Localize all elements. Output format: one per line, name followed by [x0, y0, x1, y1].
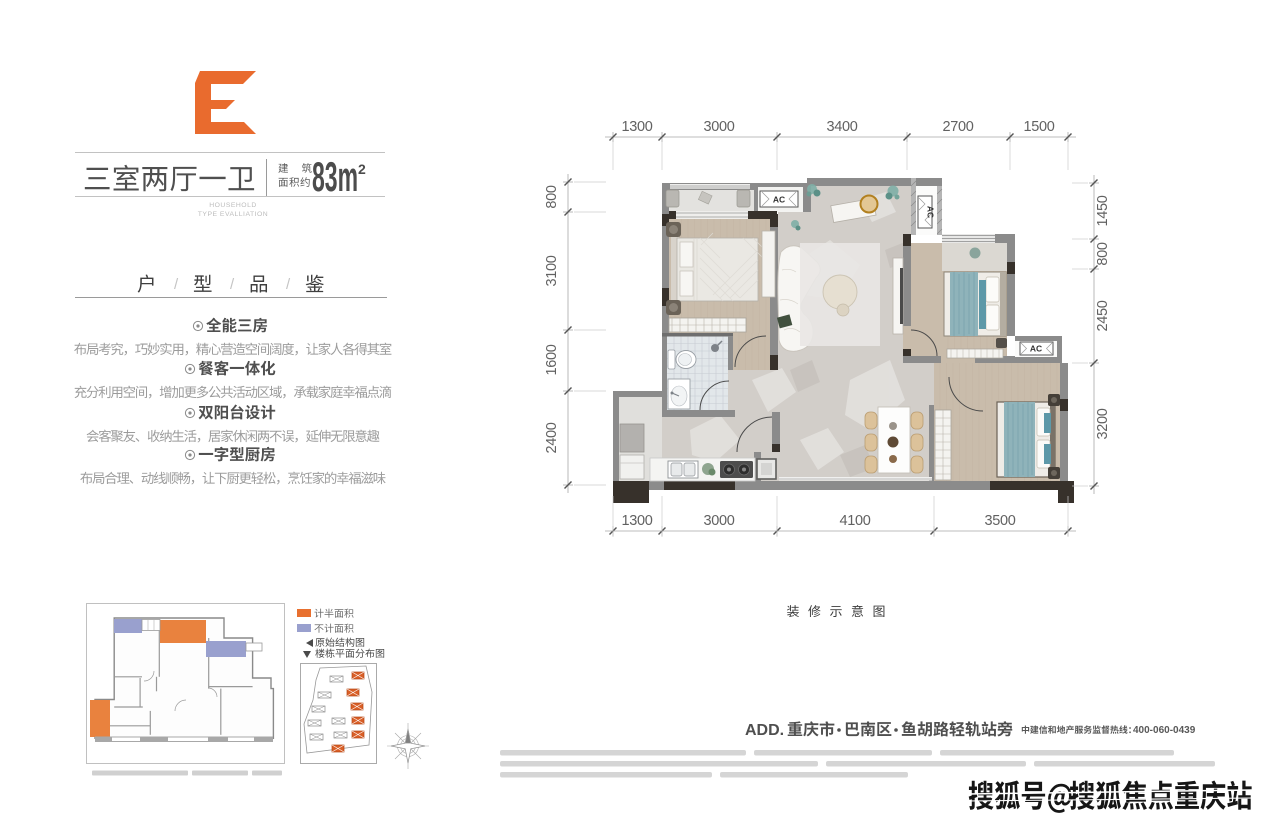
svg-text:3500: 3500 — [984, 513, 1015, 529]
svg-text:ADD.: ADD. — [745, 722, 784, 739]
svg-text:3100: 3100 — [544, 255, 560, 286]
svg-text:TYPE EVALLIATION: TYPE EVALLIATION — [198, 211, 268, 218]
svg-text:AC: AC — [926, 206, 936, 218]
svg-text:HOUSEHOLD: HOUSEHOLD — [209, 202, 257, 209]
svg-text:83m: 83m — [312, 153, 358, 200]
svg-text:3200: 3200 — [1095, 408, 1111, 439]
svg-text:4100: 4100 — [839, 513, 870, 529]
svg-text:/: / — [174, 276, 179, 293]
svg-text:2450: 2450 — [1095, 300, 1111, 331]
svg-text:2: 2 — [358, 161, 366, 177]
svg-text:1300: 1300 — [621, 119, 652, 135]
svg-text:AC: AC — [773, 195, 785, 205]
svg-text:3000: 3000 — [703, 119, 734, 135]
svg-text:/: / — [286, 276, 291, 293]
svg-text:400-060-0439: 400-060-0439 — [1133, 725, 1196, 736]
svg-text:3400: 3400 — [826, 119, 857, 135]
svg-text:3000: 3000 — [703, 513, 734, 529]
svg-text:800: 800 — [1095, 242, 1111, 266]
svg-text:AC: AC — [1030, 344, 1042, 354]
svg-text:2400: 2400 — [544, 422, 560, 453]
svg-text:1500: 1500 — [1023, 119, 1054, 135]
svg-text:1600: 1600 — [544, 344, 560, 375]
svg-text:2700: 2700 — [942, 119, 973, 135]
svg-text:1450: 1450 — [1095, 195, 1111, 226]
svg-text:800: 800 — [544, 185, 560, 209]
svg-text:/: / — [230, 276, 235, 293]
svg-text:1300: 1300 — [621, 513, 652, 529]
